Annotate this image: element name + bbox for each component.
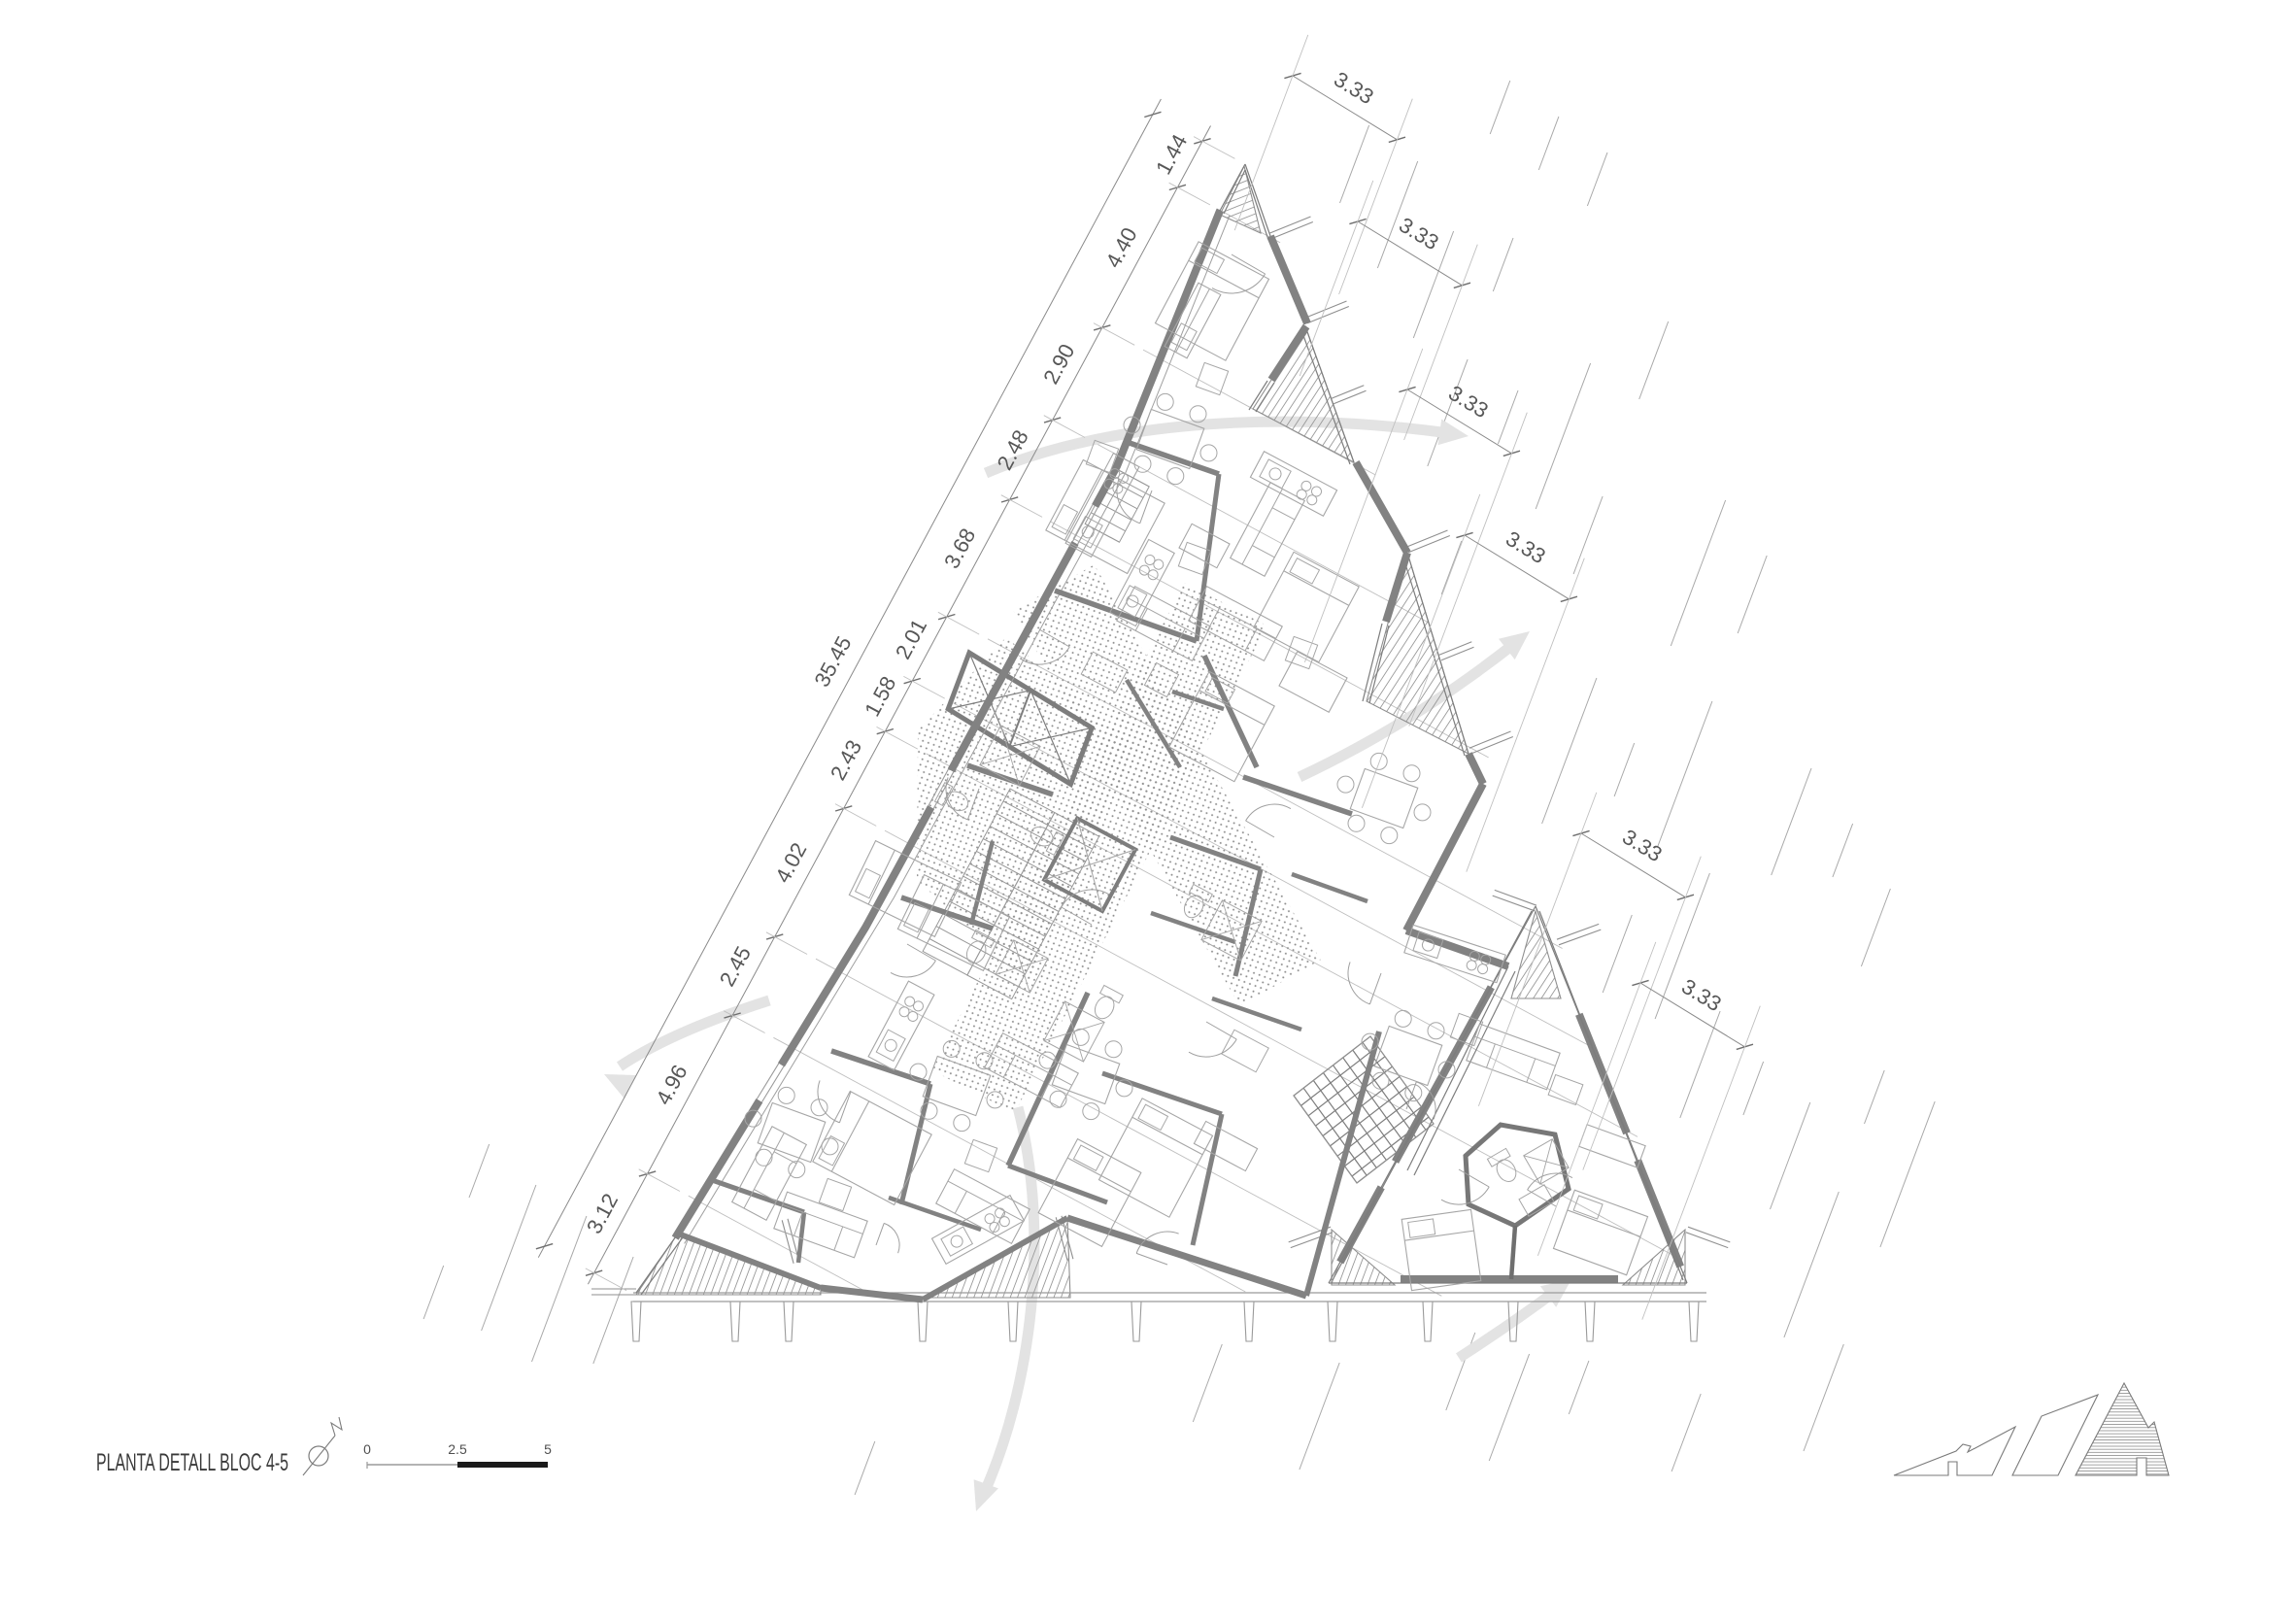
svg-text:0: 0 [363, 1441, 371, 1457]
svg-text:PLANTA DETALL BLOC 4-5: PLANTA DETALL BLOC 4-5 [96, 1449, 288, 1476]
svg-text:5: 5 [544, 1441, 552, 1457]
svg-text:2.5: 2.5 [448, 1441, 467, 1457]
